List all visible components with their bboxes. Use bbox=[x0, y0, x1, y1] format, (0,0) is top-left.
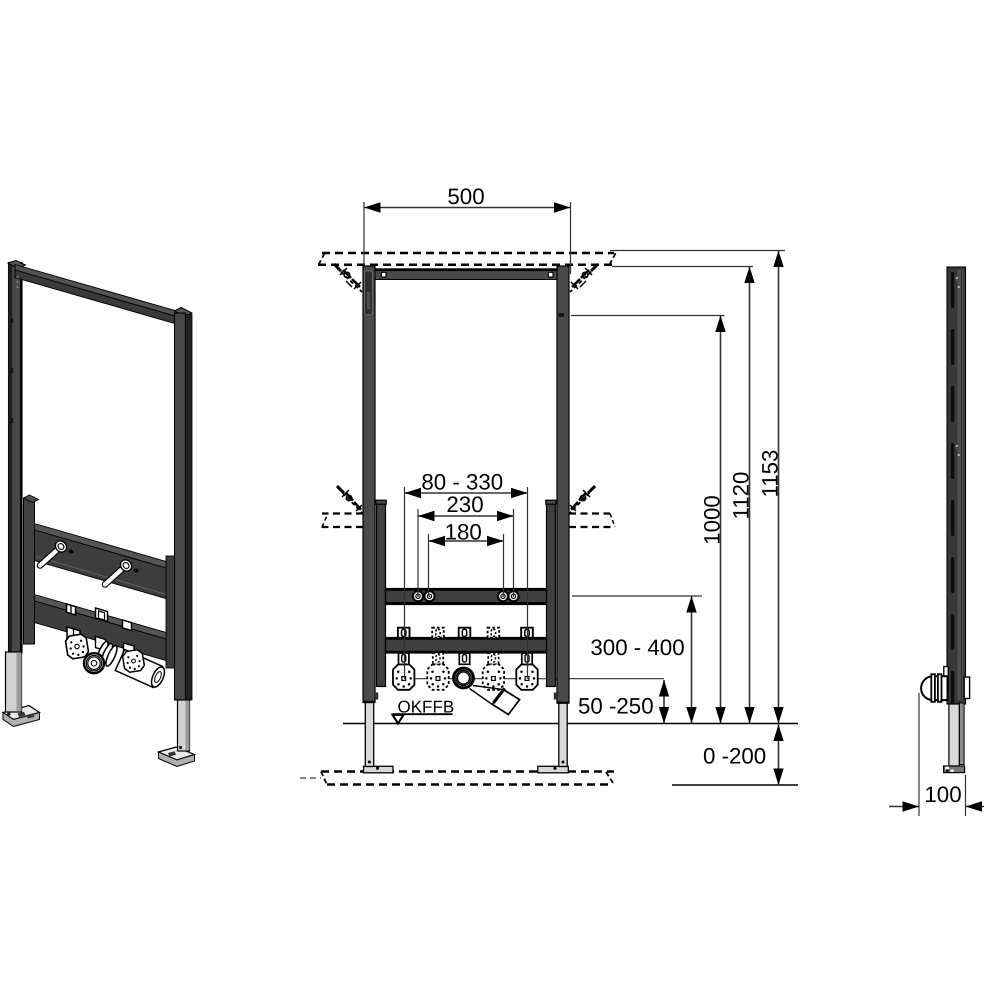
svg-text:80 - 330: 80 - 330 bbox=[421, 470, 503, 495]
svg-text:100: 100 bbox=[924, 782, 961, 807]
svg-text:1120: 1120 bbox=[728, 472, 753, 520]
svg-text:500: 500 bbox=[447, 184, 484, 209]
svg-text:1000: 1000 bbox=[699, 495, 724, 545]
svg-text:230: 230 bbox=[446, 492, 483, 517]
svg-text:300 - 400: 300 - 400 bbox=[590, 635, 684, 660]
svg-text:1153: 1153 bbox=[757, 450, 782, 498]
svg-text:0 -200: 0 -200 bbox=[703, 743, 766, 768]
svg-text:50 -250: 50 -250 bbox=[578, 694, 654, 719]
